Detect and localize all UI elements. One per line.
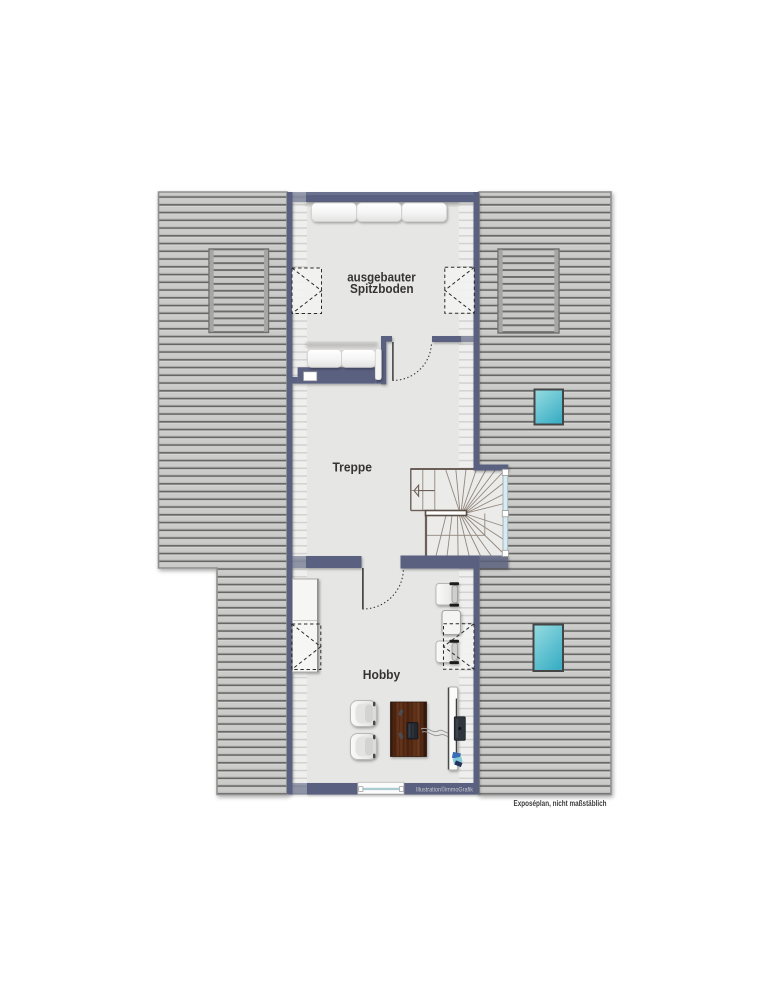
svg-text:Spitzboden: Spitzboden: [350, 281, 414, 296]
svg-text:Exposéplan, nicht maßstäblich: Exposéplan, nicht maßstäblich: [514, 799, 607, 808]
svg-text:Treppe: Treppe: [332, 460, 372, 475]
svg-text:Hobby: Hobby: [363, 667, 401, 682]
svg-text:Illustration©immoGrafik: Illustration©immoGrafik: [416, 786, 474, 794]
